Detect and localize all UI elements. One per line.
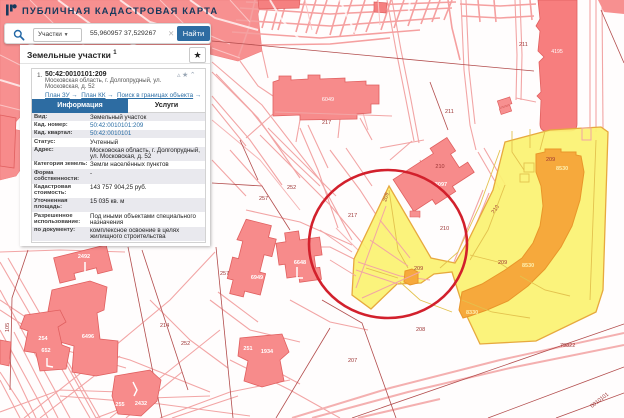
svg-text:4195: 4195 bbox=[551, 49, 563, 55]
svg-text:252: 252 bbox=[287, 185, 296, 191]
svg-text:210: 210 bbox=[435, 164, 444, 170]
svg-text:8530: 8530 bbox=[556, 166, 568, 172]
svg-text:251: 251 bbox=[243, 346, 252, 352]
svg-text:1934: 1934 bbox=[261, 349, 274, 355]
svg-text:8530: 8530 bbox=[522, 263, 534, 269]
svg-text:208: 208 bbox=[416, 327, 425, 333]
svg-text:255: 255 bbox=[115, 402, 124, 408]
svg-text:209: 209 bbox=[546, 157, 555, 163]
svg-text:209: 209 bbox=[498, 260, 507, 266]
svg-text:6949: 6949 bbox=[251, 275, 263, 281]
svg-text:210: 210 bbox=[440, 226, 449, 232]
svg-text:257: 257 bbox=[259, 196, 268, 202]
svg-text:6648: 6648 bbox=[294, 260, 306, 266]
svg-text:252: 252 bbox=[181, 341, 190, 347]
svg-text:8330: 8330 bbox=[466, 310, 478, 316]
svg-text:214: 214 bbox=[160, 323, 169, 329]
svg-text:6496: 6496 bbox=[82, 334, 94, 340]
svg-text:105: 105 bbox=[5, 323, 11, 332]
svg-text:217: 217 bbox=[322, 120, 331, 126]
svg-text:6049: 6049 bbox=[322, 97, 334, 103]
svg-text:207: 207 bbox=[348, 358, 357, 364]
svg-text:2492: 2492 bbox=[78, 254, 90, 260]
svg-text:79822: 79822 bbox=[560, 343, 575, 349]
svg-text:2432: 2432 bbox=[135, 401, 147, 407]
svg-text:257: 257 bbox=[220, 271, 229, 277]
svg-text:254: 254 bbox=[38, 336, 48, 342]
svg-text:652: 652 bbox=[41, 348, 50, 354]
svg-text:211: 211 bbox=[519, 42, 528, 48]
svg-text:209: 209 bbox=[414, 266, 423, 272]
svg-text:211: 211 bbox=[445, 109, 454, 115]
svg-text:217: 217 bbox=[348, 213, 357, 219]
